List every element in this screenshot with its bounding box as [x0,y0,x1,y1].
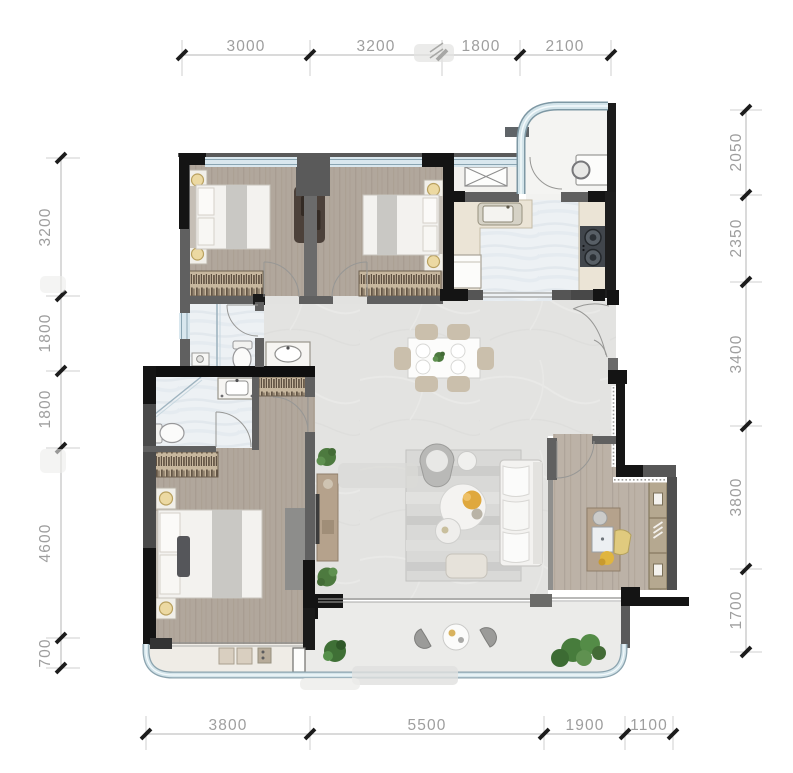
svg-text:3200: 3200 [37,208,54,247]
svg-text:700: 700 [37,638,54,667]
svg-text:1800: 1800 [462,38,501,55]
svg-text:2350: 2350 [728,219,745,258]
svg-text:1100: 1100 [630,717,668,734]
svg-text:3400: 3400 [728,335,745,374]
svg-text:1800: 1800 [37,314,54,353]
svg-text:5500: 5500 [408,717,447,734]
svg-text:1900: 1900 [566,717,605,734]
svg-text:3200: 3200 [357,38,396,55]
svg-text:1700: 1700 [728,591,745,630]
svg-text:3800: 3800 [209,717,248,734]
svg-text:3000: 3000 [227,38,266,55]
svg-text:3800: 3800 [728,478,745,517]
svg-text:2100: 2100 [546,38,585,55]
svg-text:2050: 2050 [728,133,745,172]
svg-text:1800: 1800 [37,390,54,429]
svg-text:4600: 4600 [37,524,54,563]
